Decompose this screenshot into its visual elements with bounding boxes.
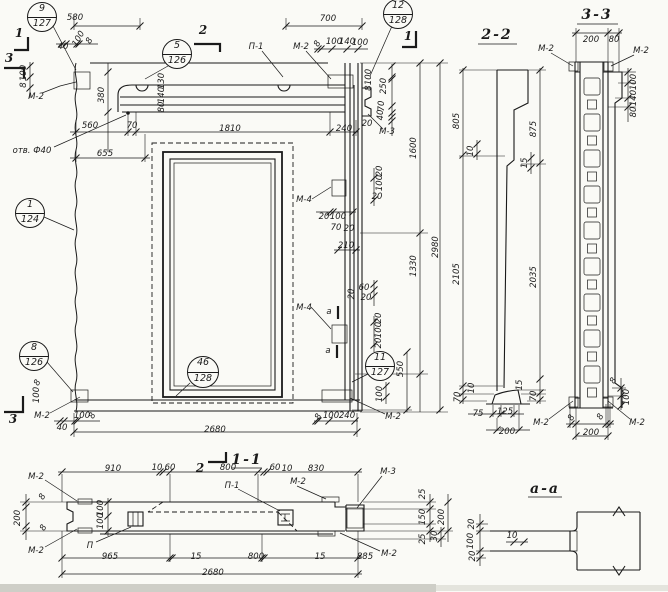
dim-label: 100 xyxy=(376,386,385,402)
dim-label: 200 xyxy=(499,428,515,437)
embed-label: М-2 xyxy=(34,412,50,421)
detail-callout: 11127 xyxy=(365,351,395,381)
embed-label: М-2 xyxy=(28,93,44,102)
annotation-layer: 5807008100140100П-1М-24010081008М-238013… xyxy=(0,0,668,592)
section-a-mark: а xyxy=(326,308,331,317)
dim-label: 15 xyxy=(516,380,525,391)
dim-label: 580 xyxy=(67,14,83,23)
dim-label: 1330 xyxy=(410,255,419,277)
callout-number: 8 xyxy=(20,342,48,357)
weld-label: П-1 xyxy=(249,43,264,52)
embed-label: М-2 xyxy=(629,419,645,428)
dim-label: 8 xyxy=(609,377,619,386)
weld-label: П-1 xyxy=(225,482,240,491)
dim-label: 100 xyxy=(375,322,384,338)
section-title-2-2: 2-2 xyxy=(481,27,512,43)
callout-sheet: 126 xyxy=(20,357,48,371)
hole-label: отв. Ф40 xyxy=(13,147,52,156)
dim-label: 60 xyxy=(165,464,176,473)
callout-number: 46 xyxy=(188,357,218,373)
dim-label: 8 xyxy=(313,40,323,49)
dim-label: 2105 xyxy=(453,263,462,285)
dim-label: 1600 xyxy=(410,137,419,159)
dim-label: 100 xyxy=(376,175,385,191)
callout-number: 1 xyxy=(16,199,44,214)
dim-label: 80 xyxy=(630,107,639,118)
embed-label: М-4 xyxy=(296,304,312,313)
dim-label: 240 xyxy=(336,125,352,134)
dim-label: 25 xyxy=(419,489,428,500)
dim-label: 830 xyxy=(308,465,324,474)
dim-label: 30 xyxy=(431,531,440,542)
dim-label: 800 xyxy=(220,464,236,473)
drawing-sheet: 5807008100140100П-1М-24010081008М-238013… xyxy=(0,0,668,592)
cut-mark-3: 3 xyxy=(9,412,17,426)
callout-sheet: 127 xyxy=(366,367,394,381)
callout-sheet: 127 xyxy=(28,18,56,32)
dim-label: 965 xyxy=(102,553,118,562)
dim-label: 240 xyxy=(339,412,355,421)
dim-label: 10 xyxy=(468,383,477,394)
dim-label: 40 xyxy=(377,110,386,121)
cut-mark-2: 2 xyxy=(196,461,204,475)
callout-number: 12 xyxy=(384,0,412,15)
dim-label: 200 xyxy=(583,429,599,438)
dim-label: 10 xyxy=(507,532,518,541)
detail-callout: 9127 xyxy=(27,2,57,32)
dim-label: 100 xyxy=(33,387,42,403)
callout-sheet: 124 xyxy=(16,214,44,228)
dim-label: 70 xyxy=(530,391,539,402)
dim-label: 10 xyxy=(467,146,476,157)
embed-label: М-2 xyxy=(28,473,44,482)
detail-callout: 46128 xyxy=(187,356,219,388)
dim-label: 200 xyxy=(438,509,447,525)
dim-label: 550 xyxy=(397,361,406,377)
dim-label: 910 xyxy=(105,465,121,474)
dim-label: 100 xyxy=(623,389,632,405)
dim-label: 210 xyxy=(338,242,354,251)
dim-label: 2680 xyxy=(204,426,226,435)
dim-label: 70 xyxy=(331,224,342,233)
dim-label: 100 xyxy=(323,412,339,421)
embed-label: М-2 xyxy=(290,478,306,487)
dim-label: 8 xyxy=(39,524,49,533)
dim-label: 1810 xyxy=(219,125,241,134)
dim-label: 20 xyxy=(319,213,330,222)
detail-callout: 8126 xyxy=(19,341,49,371)
callout-number: 9 xyxy=(28,3,56,18)
dim-label: 2980 xyxy=(432,236,441,258)
dim-label: 200 xyxy=(583,36,599,45)
embed-label: М-2 xyxy=(538,45,554,54)
dim-label: 2035 xyxy=(530,266,539,288)
dim-label: 560 xyxy=(82,122,98,131)
embed-label: М-3 xyxy=(380,468,396,477)
dim-label: 805 xyxy=(453,113,462,129)
dim-label: 60 xyxy=(270,464,281,473)
dim-label: 100 xyxy=(365,69,374,85)
dim-label: 875 xyxy=(530,121,539,137)
dim-label: 2680 xyxy=(202,569,224,578)
section-title-3-3: 3-3 xyxy=(581,7,612,23)
dim-label: 100 xyxy=(352,39,368,48)
dim-label: 20 xyxy=(372,193,383,202)
cut-mark-1: 1 xyxy=(15,26,23,40)
embed-label: М-4 xyxy=(296,196,312,205)
dim-label: 40 xyxy=(58,43,69,52)
dim-label: 20 xyxy=(362,120,373,129)
section-a-mark: а xyxy=(325,347,330,356)
callout-sheet: 128 xyxy=(384,15,412,29)
cut-mark-2: 2 xyxy=(199,23,207,37)
dim-label: 800 xyxy=(248,553,264,562)
dim-label: 70 xyxy=(127,122,138,131)
section-title-a-a: а-а xyxy=(530,481,560,497)
embed-label: П xyxy=(87,542,93,551)
callout-sheet: 128 xyxy=(188,373,218,388)
dim-label: 15 xyxy=(191,553,202,562)
dim-label: 8 xyxy=(365,85,374,90)
cut-mark-1: 1 xyxy=(404,29,412,43)
dim-label: 80 xyxy=(158,102,167,113)
dim-label: 10 xyxy=(282,465,293,474)
dim-label: 250 xyxy=(380,78,389,94)
dim-label: 380 xyxy=(98,87,107,103)
dim-label: 8 xyxy=(567,414,577,423)
dim-label: 20 xyxy=(469,551,478,562)
callout-number: 5 xyxy=(163,40,191,55)
dim-label: 700 xyxy=(320,15,336,24)
dim-label: 75 xyxy=(473,410,484,419)
dim-label: 70 xyxy=(454,392,463,403)
embed-label: М-2 xyxy=(385,413,401,422)
dim-label: 60 xyxy=(359,284,370,293)
dim-label: 15 xyxy=(521,158,530,169)
dim-label: 8 xyxy=(596,413,606,422)
dim-label: 125 xyxy=(497,408,513,417)
dim-label: 8 xyxy=(20,82,29,87)
dim-label: 100 xyxy=(97,513,106,529)
dim-label: 20 xyxy=(344,225,355,234)
dim-label: 100 xyxy=(20,65,29,81)
dim-label: 150 xyxy=(419,509,428,525)
callout-number: 11 xyxy=(366,352,394,367)
dim-label: 20 xyxy=(361,294,372,303)
embed-label: М-3 xyxy=(379,128,395,137)
embed-label: М-2 xyxy=(293,43,309,52)
detail-callout: 5126 xyxy=(162,39,192,69)
dim-label: 20 xyxy=(468,519,477,530)
dim-label: 80 xyxy=(609,36,620,45)
dim-label: 20 xyxy=(348,289,357,300)
dim-label: 8 xyxy=(85,37,95,46)
embed-label: М-2 xyxy=(633,47,649,56)
dim-label: 655 xyxy=(97,150,113,159)
callout-sheet: 126 xyxy=(163,55,191,69)
dim-label: 20 xyxy=(375,338,384,349)
dim-label: 15 xyxy=(315,553,326,562)
dim-label: 10 xyxy=(152,464,163,473)
dim-label: 885 xyxy=(357,553,373,562)
dim-label: 140 xyxy=(630,90,639,106)
detail-callout: 1124 xyxy=(15,198,45,228)
dim-label: 200 xyxy=(14,510,23,526)
embed-label: М-2 xyxy=(28,547,44,556)
detail-callout: 12128 xyxy=(383,0,413,29)
dim-label: 25 xyxy=(419,534,428,545)
dim-label: 100 xyxy=(330,213,346,222)
cut-mark-3: 3 xyxy=(5,51,13,65)
embed-label: М-2 xyxy=(381,550,397,559)
embed-label: М-2 xyxy=(533,419,549,428)
dim-label: 100 xyxy=(467,533,476,549)
dim-label: 100 xyxy=(630,74,639,90)
dim-label: 40 xyxy=(57,424,68,433)
dim-label: 8 xyxy=(38,493,48,502)
